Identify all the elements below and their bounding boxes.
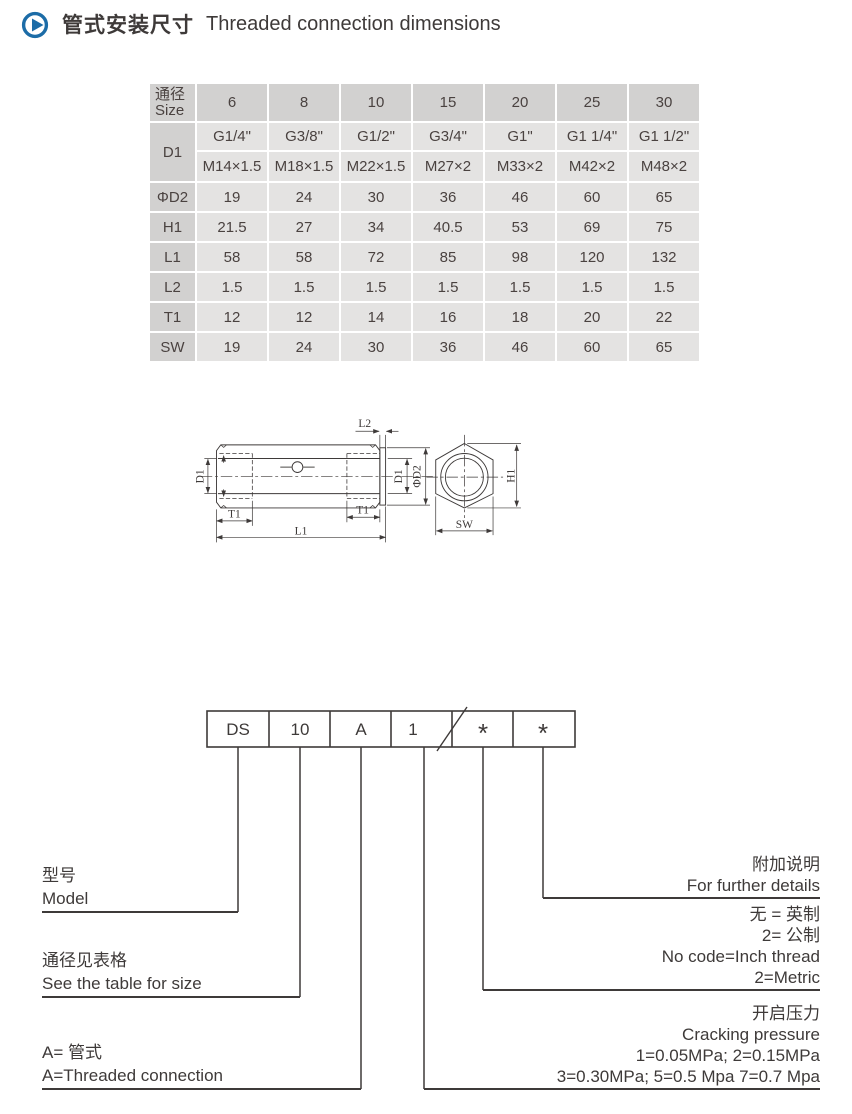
- table-cell: 18: [485, 303, 555, 331]
- table-cell: 1.5: [269, 273, 339, 301]
- table-corner-cell: 通径 Size: [150, 84, 195, 121]
- table-cell: M33×2: [485, 152, 555, 181]
- legend-thread-line: 无 = 英制: [662, 904, 820, 925]
- size-header: 25: [557, 84, 627, 121]
- legend-thread-line: No code=Inch thread: [662, 946, 820, 967]
- table-cell: M18×1.5: [269, 152, 339, 181]
- code-cell-details: *: [538, 718, 548, 748]
- code-cell-size: 10: [291, 720, 310, 739]
- table-cell: 60: [557, 183, 627, 211]
- legend-connection-en: A=Threaded connection: [42, 1064, 223, 1087]
- section-title-zh: 管式安装尺寸: [62, 9, 194, 39]
- table-cell: 53: [485, 213, 555, 241]
- size-header: 8: [269, 84, 339, 121]
- legend-pressure-line: 3=0.30MPa; 5=0.5 Mpa 7=0.7 Mpa: [557, 1066, 820, 1087]
- legend-connection-zh: A= 管式: [42, 1041, 223, 1064]
- legend-details-zh: 附加说明: [687, 854, 820, 875]
- legend-thread-line: 2= 公制: [662, 925, 820, 946]
- table-cell: G1 1/2": [629, 123, 699, 150]
- technical-drawing: D1 L2 D1 ΦD2 T1 T1 L1 H1 SW: [190, 385, 670, 570]
- code-cell-thread: *: [478, 718, 488, 748]
- table-cell: M42×2: [557, 152, 627, 181]
- legend-size-en: See the table for size: [42, 972, 202, 995]
- table-cell: 60: [557, 333, 627, 361]
- dim-label-l2: L2: [358, 418, 371, 430]
- table-cell: 1.5: [485, 273, 555, 301]
- drawing-labels: D1 L2 D1 ΦD2 T1 T1 L1 H1 SW: [195, 418, 518, 537]
- table-cell: 19: [197, 183, 267, 211]
- row-label: L2: [150, 273, 195, 301]
- table-cell: 85: [413, 243, 483, 271]
- legend-details: 附加说明 For further details: [687, 854, 820, 896]
- legend-pressure-line: Cracking pressure: [557, 1024, 820, 1045]
- size-header: 20: [485, 84, 555, 121]
- table-cell: 24: [269, 183, 339, 211]
- table-cell: 21.5: [197, 213, 267, 241]
- row-label: H1: [150, 213, 195, 241]
- table-cell: 1.5: [557, 273, 627, 301]
- row-label: SW: [150, 333, 195, 361]
- legend-thread-line: 2=Metric: [662, 967, 820, 988]
- side-view-dimensions: [204, 431, 430, 542]
- legend-model-en: Model: [42, 887, 88, 910]
- size-header: 10: [341, 84, 411, 121]
- table-cell: 1.5: [629, 273, 699, 301]
- table-cell: M14×1.5: [197, 152, 267, 181]
- table-cell: 36: [413, 333, 483, 361]
- legend-details-en: For further details: [687, 875, 820, 896]
- table-cell: G1/4": [197, 123, 267, 150]
- dim-label-t1-right: T1: [356, 505, 369, 517]
- dim-label-phi-d2: ΦD2: [412, 465, 424, 488]
- model-code-cells: DS 10 A 1 * *: [226, 718, 548, 748]
- table-cell: 30: [341, 333, 411, 361]
- section-header: 管式安装尺寸 Threaded connection dimensions: [21, 9, 501, 39]
- row-label: ΦD2: [150, 183, 195, 211]
- table-cell: 24: [269, 333, 339, 361]
- legend-pressure-line: 开启压力: [557, 1003, 820, 1024]
- row-label: L1: [150, 243, 195, 271]
- table-cell: G3/8": [269, 123, 339, 150]
- table-cell: 72: [341, 243, 411, 271]
- legend-connection: A= 管式 A=Threaded connection: [42, 1041, 223, 1087]
- table-cell: 1.5: [341, 273, 411, 301]
- table-cell: 19: [197, 333, 267, 361]
- play-bullet-icon: [21, 10, 49, 39]
- legend-model-zh: 型号: [42, 864, 88, 887]
- legend-model: 型号 Model: [42, 864, 88, 910]
- code-cell-series: DS: [226, 720, 250, 739]
- table-cell: 14: [341, 303, 411, 331]
- section-title-en: Threaded connection dimensions: [206, 13, 501, 36]
- dim-label-d1-left: D1: [195, 469, 207, 483]
- dim-label-l1: L1: [295, 525, 308, 537]
- legend-pressure: 开启压力 Cracking pressure 1=0.05MPa; 2=0.15…: [557, 1003, 820, 1087]
- table-cell: 22: [629, 303, 699, 331]
- table-cell: 12: [197, 303, 267, 331]
- datasheet-page: 管式安装尺寸 Threaded connection dimensions 通径…: [0, 0, 852, 1114]
- legend-size-zh: 通径见表格: [42, 949, 202, 972]
- table-cell: 69: [557, 213, 627, 241]
- check-valve-symbol: [280, 462, 314, 473]
- legend-size: 通径见表格 See the table for size: [42, 949, 202, 995]
- corner-en: Size: [155, 103, 184, 119]
- table-cell: 1.5: [197, 273, 267, 301]
- table-cell: 46: [485, 333, 555, 361]
- table-cell: G1": [485, 123, 555, 150]
- table-cell: M22×1.5: [341, 152, 411, 181]
- table-cell: G3/4": [413, 123, 483, 150]
- table-cell: 36: [413, 183, 483, 211]
- table-cell: 120: [557, 243, 627, 271]
- table-cell: 65: [629, 183, 699, 211]
- code-cell-pressure: 1: [408, 720, 417, 739]
- table-cell: 12: [269, 303, 339, 331]
- table-cell: 58: [197, 243, 267, 271]
- table-cell: G1/2": [341, 123, 411, 150]
- table-cell: 20: [557, 303, 627, 331]
- table-cell: 27: [269, 213, 339, 241]
- size-header: 15: [413, 84, 483, 121]
- table-cell: 16: [413, 303, 483, 331]
- dimensions-table: 通径 Size 6 8 10 15 20 25 30 D1 G1/4" G3/8…: [150, 84, 699, 361]
- size-header: 6: [197, 84, 267, 121]
- row-label: T1: [150, 303, 195, 331]
- table-cell: 30: [341, 183, 411, 211]
- table-cell: 75: [629, 213, 699, 241]
- dim-label-sw: SW: [456, 519, 473, 531]
- table-cell: M48×2: [629, 152, 699, 181]
- table-cell: 132: [629, 243, 699, 271]
- table-cell: G1 1/4": [557, 123, 627, 150]
- legend-pressure-line: 1=0.05MPa; 2=0.15MPa: [557, 1045, 820, 1066]
- table-cell: M27×2: [413, 152, 483, 181]
- table-cell: 58: [269, 243, 339, 271]
- valve-end-view: [426, 435, 503, 518]
- size-header: 30: [629, 84, 699, 121]
- table-cell: 34: [341, 213, 411, 241]
- corner-zh: 通径: [155, 87, 185, 103]
- dim-label-d1-right: D1: [393, 469, 405, 483]
- table-cell: 40.5: [413, 213, 483, 241]
- legend-thread: 无 = 英制 2= 公制 No code=Inch thread 2=Metri…: [662, 904, 820, 988]
- dim-label-h1: H1: [506, 468, 518, 482]
- dim-label-t1-left: T1: [228, 508, 241, 520]
- table-cell: 46: [485, 183, 555, 211]
- table-cell: 1.5: [413, 273, 483, 301]
- row-label-D1: D1: [150, 123, 195, 181]
- table-cell: 65: [629, 333, 699, 361]
- table-cell: 98: [485, 243, 555, 271]
- code-cell-type: A: [355, 720, 367, 739]
